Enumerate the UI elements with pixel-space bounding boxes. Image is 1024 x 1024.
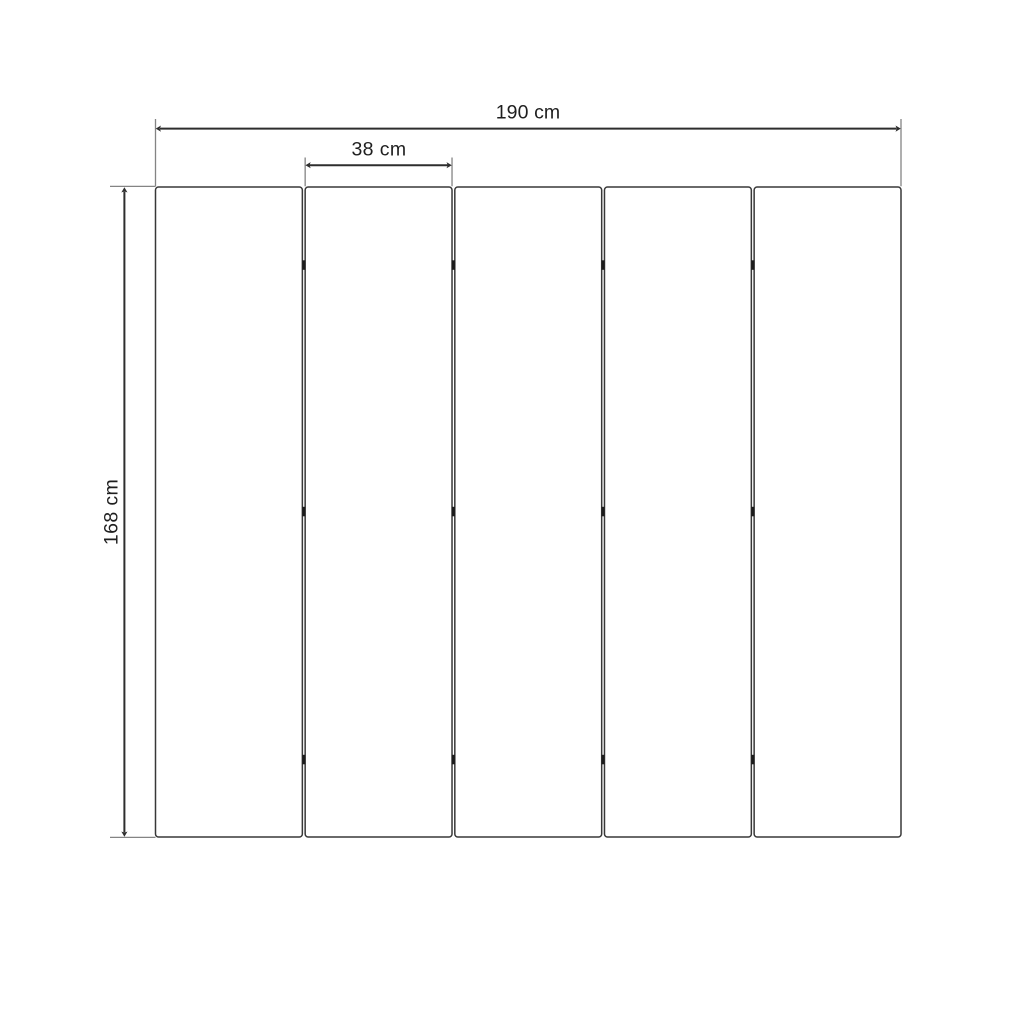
svg-text:168 cm: 168 cm <box>101 479 123 545</box>
svg-text:38 cm: 38 cm <box>351 138 406 160</box>
svg-text:190 cm: 190 cm <box>496 102 561 124</box>
